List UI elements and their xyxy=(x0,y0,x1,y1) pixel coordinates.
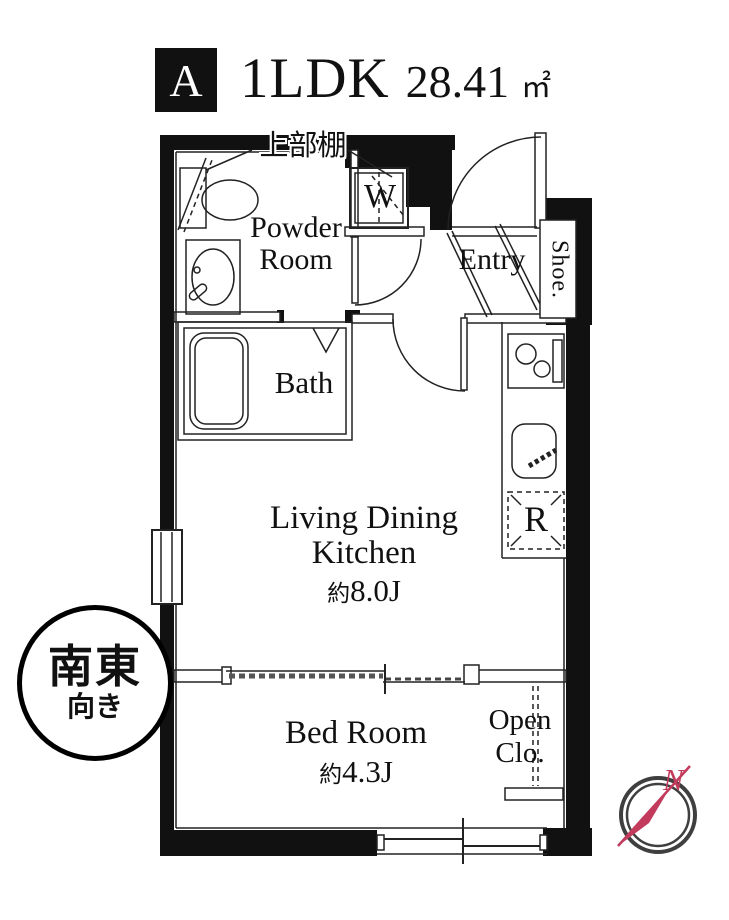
floor-plan-page: N A 1LDK 28.41 ㎡ 上部棚 Powder Room W Entry… xyxy=(0,0,729,920)
sink-icon xyxy=(512,424,556,478)
front-door xyxy=(448,133,546,236)
shoe-cabinet-label: Shoe. xyxy=(541,221,577,318)
upper-shelf-label: 上部棚 xyxy=(248,131,358,161)
sliding-door-partition xyxy=(226,664,465,694)
orientation-badge: 南東 向き xyxy=(17,605,173,761)
compass-icon: N xyxy=(618,762,695,852)
plan-title: 1LDK 28.41 ㎡ xyxy=(240,46,551,111)
entry-label: Entry xyxy=(449,244,535,276)
bath-label: Bath xyxy=(252,367,356,400)
ldk-door xyxy=(393,318,467,391)
window-left xyxy=(152,530,182,604)
orientation-suffix: 向き xyxy=(67,694,123,722)
refrigerator-label: R xyxy=(508,490,564,550)
open-closet-shelf xyxy=(505,788,563,800)
ldk-label: Living Dining Kitchen 約8.0J xyxy=(238,501,490,608)
bath-folding-door xyxy=(313,328,339,352)
unit-badge-letter: A xyxy=(169,54,202,107)
orientation-direction: 南東 xyxy=(48,645,142,690)
compass-north-label: N xyxy=(662,762,686,797)
area-value: 28.41 xyxy=(406,55,510,108)
stove-icon xyxy=(508,334,564,388)
washing-machine-label: W xyxy=(350,166,410,228)
unit-badge: A xyxy=(155,48,217,112)
area-unit: ㎡ xyxy=(521,62,551,106)
bedroom-size: 約4.3J xyxy=(230,756,482,789)
ldk-size: 約8.0J xyxy=(238,575,490,608)
bedroom-label: Bed Room 約4.3J xyxy=(230,716,482,788)
open-closet-label: Open Clo. xyxy=(477,704,563,771)
powder-room-label: Powder Room xyxy=(221,212,371,275)
layout-type-label: 1LDK xyxy=(240,46,390,111)
window-bottom xyxy=(377,818,547,864)
